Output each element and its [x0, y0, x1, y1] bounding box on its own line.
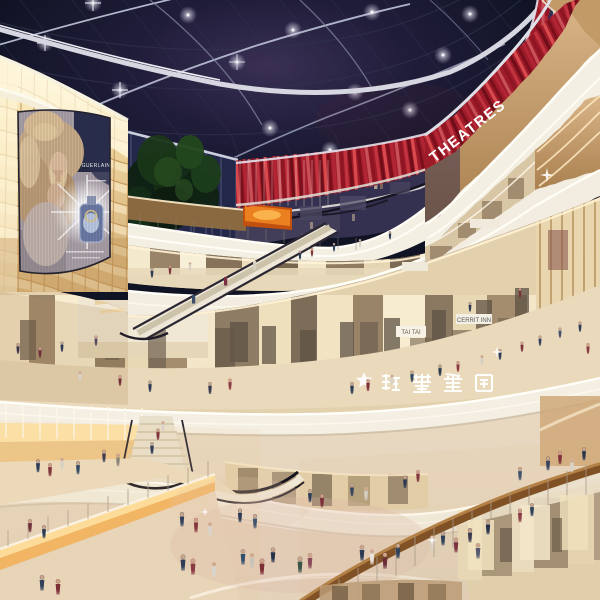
svg-text:CERRIT INN: CERRIT INN: [457, 318, 491, 324]
svg-text:TAI TAI: TAI TAI: [401, 330, 421, 336]
